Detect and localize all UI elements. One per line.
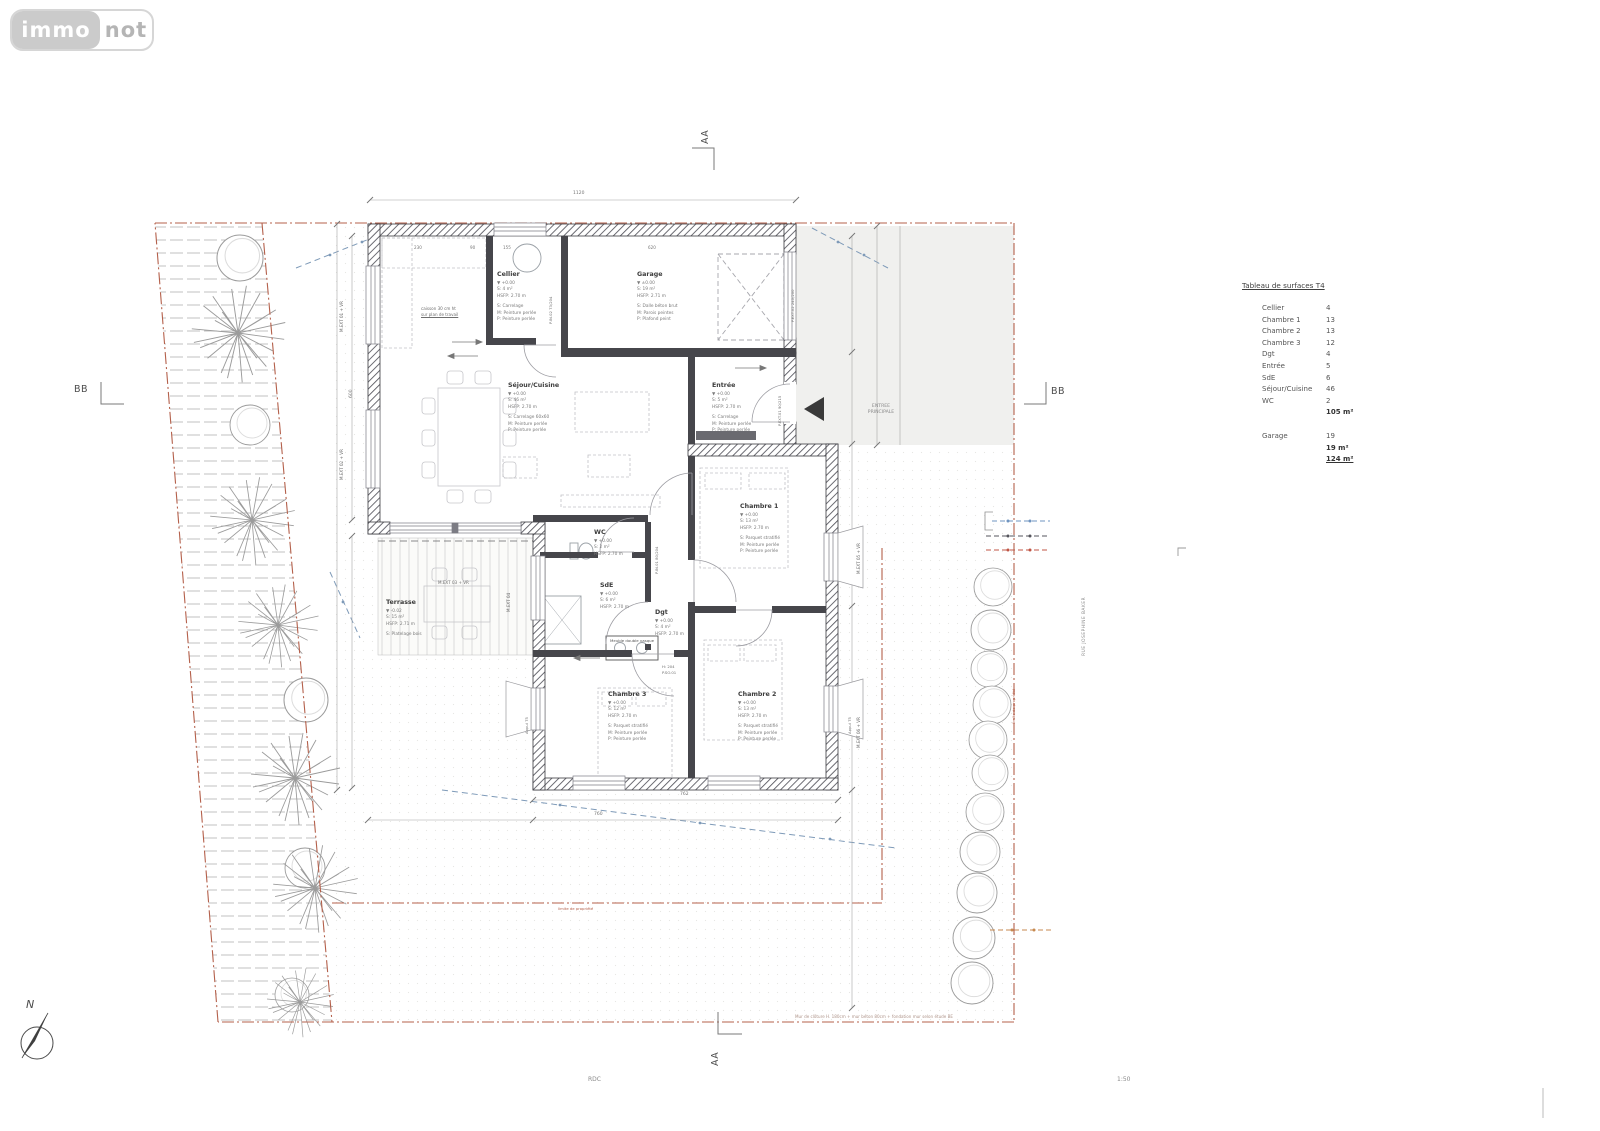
surface-subtotal: 105 m² bbox=[1326, 407, 1353, 419]
logo-not-segment: not bbox=[100, 11, 152, 49]
dim-bottom-760: 760 bbox=[594, 812, 603, 817]
floor-plan-page: { "logo": {"immo": "immo", "not": "not"}… bbox=[0, 0, 1600, 1131]
room-label-dgt: Dgt ▼ +0.00 S: 4 m² HSFP: 2.70 m bbox=[655, 608, 684, 638]
scale-label: 1:50 bbox=[1117, 1076, 1130, 1083]
table-row: SdE6 bbox=[1262, 373, 1380, 385]
room-name: Séjour/Cuisine bbox=[508, 381, 559, 390]
room-name: Dgt bbox=[655, 608, 684, 617]
room-height: HSFP: 2.71 m bbox=[386, 622, 422, 628]
logo-immo-segment: immo bbox=[12, 11, 100, 49]
room-label-chambre3: Chambre 3 ▼ +0.00 S: 12 m² HSFP: 2.70 m … bbox=[608, 690, 648, 744]
site-plan-drawing bbox=[0, 0, 1600, 1131]
room-finish: P: Peinture perlée bbox=[608, 737, 648, 743]
room-label-garage: Garage ▼ ±0.00 S: 19 m² HSFP: 2.71 m S: … bbox=[637, 270, 678, 324]
room-name: Garage bbox=[637, 270, 678, 279]
immonot-logo: immo not bbox=[10, 9, 154, 51]
dim-620: 620 bbox=[648, 245, 656, 250]
surface-row-label: Dgt bbox=[1262, 350, 1275, 358]
surface-row-value: 12 bbox=[1326, 338, 1335, 350]
room-height: HSFP: 2.70 m bbox=[508, 405, 559, 411]
room-finish: P: Peinture perlée bbox=[712, 428, 751, 434]
room-height: HSFP: 2.70 m bbox=[600, 605, 629, 611]
kitchen-note-2: sur plan de travail bbox=[421, 312, 458, 317]
footer-note: Mur de clôture H. 180cm + mur béton 80cm… bbox=[795, 1014, 953, 1019]
room-name: SdE bbox=[600, 581, 629, 590]
room-name: Chambre 1 bbox=[740, 502, 780, 511]
room-height: HSFP: 2.70 m bbox=[497, 294, 536, 300]
room-height: HSFP: 2.70 m bbox=[738, 714, 778, 720]
dim-top-total: 1120 bbox=[573, 191, 584, 196]
planting-strip bbox=[155, 223, 332, 1022]
table-row-garage: Garage19 bbox=[1262, 431, 1380, 443]
driveway-area bbox=[796, 226, 1014, 445]
sill-label-right: Appui 75 bbox=[847, 717, 852, 734]
room-label-chambre1: Chambre 1 ▼ +0.00 S: 13 m² HSFP: 2.70 m … bbox=[740, 502, 780, 556]
surface-row-label: Cellier bbox=[1262, 304, 1284, 312]
room-finish: P: Peinture perlée bbox=[738, 737, 778, 743]
surface-table-title: Tableau de surfaces T4 bbox=[1242, 281, 1380, 290]
room-name: Chambre 3 bbox=[608, 690, 648, 699]
room-finish: S: Parquet stratifié bbox=[608, 724, 648, 730]
table-row: Dgt4 bbox=[1262, 349, 1380, 361]
room-height: HSFP: 2.70 m bbox=[740, 526, 780, 532]
dim-230: 230 bbox=[414, 245, 422, 250]
room-finish: P: Peinture perlée bbox=[497, 317, 536, 323]
surface-row-label: WC bbox=[1262, 397, 1274, 405]
surface-row-value: 6 bbox=[1326, 373, 1330, 385]
main-door-opening bbox=[784, 382, 796, 424]
room-name: Entrée bbox=[712, 381, 751, 390]
level-name: RDC bbox=[588, 1076, 601, 1083]
north-arrow-icon bbox=[21, 1013, 53, 1059]
wall-label-mext02: M.EXT 02 + VR bbox=[339, 449, 344, 480]
surface-row-label: Chambre 3 bbox=[1262, 339, 1301, 347]
wall-label-mext03: M.EXT 03 + VR bbox=[438, 580, 469, 585]
room-label-cellier: Cellier ▼ +0.00 S: 4 m² HSFP: 2.70 m S: … bbox=[497, 270, 536, 324]
boundary-note-bottom: limite de propriété bbox=[558, 906, 593, 911]
room-height: HSFP: 2.70 m bbox=[594, 552, 623, 558]
door-label-h204: H: 204 bbox=[662, 664, 675, 669]
room-label-sejour: Séjour/Cuisine ▼ +0.00 S: 46 m² HSFP: 2.… bbox=[508, 381, 559, 435]
room-height: HSFP: 2.70 m bbox=[608, 714, 648, 720]
door-label-pin02: P.IN.02 73/204 bbox=[548, 297, 553, 324]
table-row-subtotal: 105 m² bbox=[1262, 407, 1380, 419]
sill-label-left: Appui 75 bbox=[524, 717, 529, 734]
table-row-grand-total: 124 m² bbox=[1262, 454, 1380, 466]
table-row: Entrée5 bbox=[1262, 361, 1380, 373]
garage-total: 19 m² bbox=[1326, 443, 1349, 455]
dim-90: 90 bbox=[470, 245, 475, 250]
door-label-pin01: P.IN.01 80/204 bbox=[654, 547, 659, 574]
surface-row-value: 2 bbox=[1326, 396, 1330, 408]
boundary-note-right: limite de propriété bbox=[1011, 689, 1016, 724]
surface-row-label: Entrée bbox=[1262, 362, 1285, 370]
room-height: HSFP: 2.71 m bbox=[637, 294, 678, 300]
wall-label-mext06: M.EXT 06 + VR bbox=[856, 717, 861, 748]
surface-row-label: SdE bbox=[1262, 374, 1275, 382]
surface-row-label: Chambre 1 bbox=[1262, 316, 1301, 324]
surface-row-label: Séjour/Cuisine bbox=[1262, 385, 1312, 393]
table-row: Chambre 213 bbox=[1262, 326, 1380, 338]
room-finish: P: Peinture perlée bbox=[508, 428, 559, 434]
section-marker-aa-top: AA bbox=[700, 130, 711, 144]
room-label-sde: SdE ▼ +0.00 S: 6 m² HSFP: 2.70 m bbox=[600, 581, 629, 611]
wall-label-mext01: M.EXT 01 + VR bbox=[339, 301, 344, 332]
room-finish: S: Dalle béton brut bbox=[637, 304, 678, 310]
table-row: Chambre 312 bbox=[1262, 338, 1380, 350]
room-label-wc: WC ▼ +0.00 S: 2 m² HSFP: 2.70 m bbox=[594, 528, 623, 558]
room-finish: S: Parquet stratifié bbox=[738, 724, 778, 730]
surface-row-label: Garage bbox=[1262, 432, 1288, 440]
room-finish: S: Platelage bois bbox=[386, 632, 422, 638]
surface-row-label: Chambre 2 bbox=[1262, 327, 1301, 335]
room-label-chambre2: Chambre 2 ▼ +0.00 S: 13 m² HSFP: 2.70 m … bbox=[738, 690, 778, 744]
room-finish: S: Parquet stratifié bbox=[740, 536, 780, 542]
room-name: Chambre 2 bbox=[738, 690, 778, 699]
wall-label-mext04: M.EXT 04 bbox=[506, 593, 511, 612]
surface-row-value: 46 bbox=[1326, 384, 1335, 396]
surface-table: Tableau de surfaces T4 Cellier4 Chambre … bbox=[1230, 281, 1380, 466]
wall-label-mext05: M.EXT 05 + VR bbox=[856, 543, 861, 574]
section-marker-bb-right: BB bbox=[1051, 386, 1065, 397]
surface-row-value: 13 bbox=[1326, 315, 1335, 327]
north-label: N bbox=[26, 998, 34, 1011]
door-label-pext01: P.EXT.01 90/215 bbox=[777, 396, 782, 426]
door-label-fext02: F.EXT.02 240/200 bbox=[790, 289, 795, 322]
entrance-line2: PRINCIPALE bbox=[858, 410, 904, 416]
room-height: HSFP: 2.70 m bbox=[655, 632, 684, 638]
vanity-note: Meuble double vasque bbox=[608, 639, 656, 644]
dim-155: 155 bbox=[503, 245, 511, 250]
room-label-terrasse: Terrasse ▼ -0.02 S: 15 m² HSFP: 2.71 m S… bbox=[386, 598, 422, 639]
room-label-entree: Entrée ▼ +0.00 S: 5 m² HSFP: 2.70 m S: C… bbox=[712, 381, 751, 435]
street-name: RUE JOSEPHINE BAKER bbox=[1082, 597, 1087, 656]
door-label-pso01: P.SO.01 bbox=[662, 670, 676, 675]
table-row: Chambre 113 bbox=[1262, 315, 1380, 327]
table-row: Cellier4 bbox=[1262, 303, 1380, 315]
surface-row-value: 4 bbox=[1326, 303, 1330, 315]
room-finish: P: Plafond peint bbox=[637, 317, 678, 323]
hedge-right bbox=[951, 568, 1012, 1004]
surface-row-value: 13 bbox=[1326, 326, 1335, 338]
section-marker-aa-bottom: AA bbox=[710, 1052, 721, 1066]
room-finish: P: Peinture perlée bbox=[740, 549, 780, 555]
table-row: Séjour/Cuisine46 bbox=[1262, 384, 1380, 396]
surface-row-value: 19 bbox=[1326, 431, 1335, 443]
section-marker-bb-left: BB bbox=[74, 384, 88, 395]
kitchen-note-1: caisson 30 cm ht bbox=[421, 306, 456, 311]
dim-bottom-762: 762 bbox=[680, 792, 689, 797]
dim-left-600: 600 bbox=[349, 389, 354, 398]
surface-row-value: 4 bbox=[1326, 349, 1330, 361]
room-name: Terrasse bbox=[386, 598, 422, 607]
room-height: HSFP: 2.70 m bbox=[712, 405, 751, 411]
table-row: WC2 bbox=[1262, 396, 1380, 408]
room-name: Cellier bbox=[497, 270, 536, 279]
room-name: WC bbox=[594, 528, 623, 537]
grand-total: 124 m² bbox=[1326, 454, 1353, 466]
surface-row-value: 5 bbox=[1326, 361, 1330, 373]
table-row-garage-total: 19 m² bbox=[1262, 443, 1380, 455]
main-entrance-label: ENTREE PRINCIPALE bbox=[858, 404, 904, 416]
